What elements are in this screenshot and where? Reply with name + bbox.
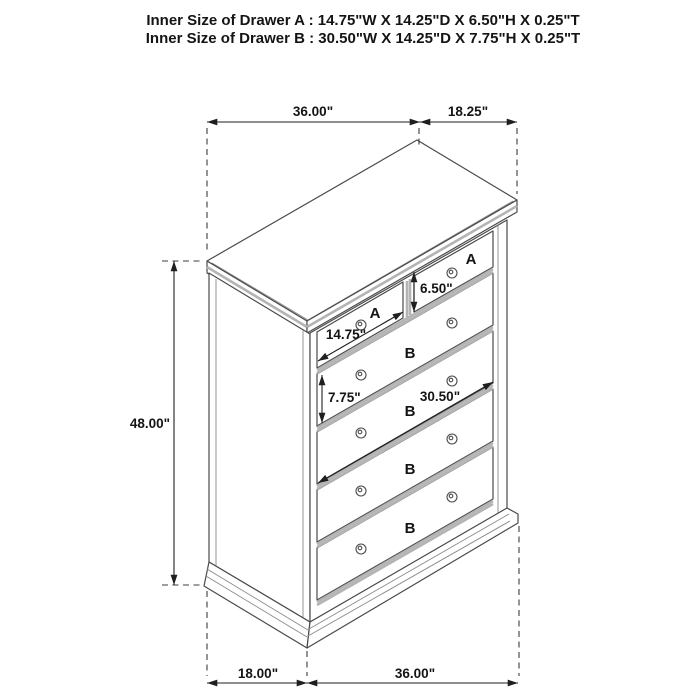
knob-b3-left	[356, 486, 366, 496]
dim-drawer-a-height-label: 6.50"	[420, 281, 453, 296]
knob-b4-left	[356, 544, 366, 554]
dim-bottom-depth-label: 18.00"	[238, 666, 278, 681]
knob-b1-right	[447, 318, 457, 328]
dim-height-label: 48.00"	[130, 416, 170, 431]
dim-drawer-b-height-label: 7.75"	[328, 390, 361, 405]
drawer-b-spec-text: Inner Size of Drawer B : 30.50"W X 14.25…	[146, 30, 580, 47]
dim-drawer-b-width-label: 30.50"	[420, 389, 460, 404]
knob-b2-left	[356, 428, 366, 438]
knob-b3-right	[447, 434, 457, 444]
dim-top-width-label: 36.00"	[293, 104, 333, 119]
knob-a-right	[447, 268, 457, 278]
dim-drawer-a-width-label: 14.75"	[326, 327, 366, 342]
label-drawer-b3: B	[405, 461, 416, 478]
label-drawer-b4: B	[405, 520, 416, 537]
label-drawer-a-right: A	[466, 251, 477, 268]
label-drawer-a-left: A	[370, 305, 381, 322]
dim-top-depth-label: 18.25"	[448, 104, 488, 119]
knob-b4-right	[447, 492, 457, 502]
chest-dimension-drawing: Inner Size of Drawer A : 14.75"W X 14.25…	[0, 0, 700, 700]
dimension-diagram: Inner Size of Drawer A : 14.75"W X 14.25…	[0, 0, 700, 700]
knob-b2-right	[447, 376, 457, 386]
knob-b1-left	[356, 370, 366, 380]
chest-illustration	[204, 140, 518, 648]
drawer-a-spec-text: Inner Size of Drawer A : 14.75"W X 14.25…	[146, 12, 579, 29]
label-drawer-b1: B	[405, 345, 416, 362]
dim-bottom-width-label: 36.00"	[395, 666, 435, 681]
spec-header: Inner Size of Drawer A : 14.75"W X 14.25…	[146, 12, 580, 47]
label-drawer-b2: B	[405, 403, 416, 420]
chest-left-side-panel	[209, 273, 310, 622]
